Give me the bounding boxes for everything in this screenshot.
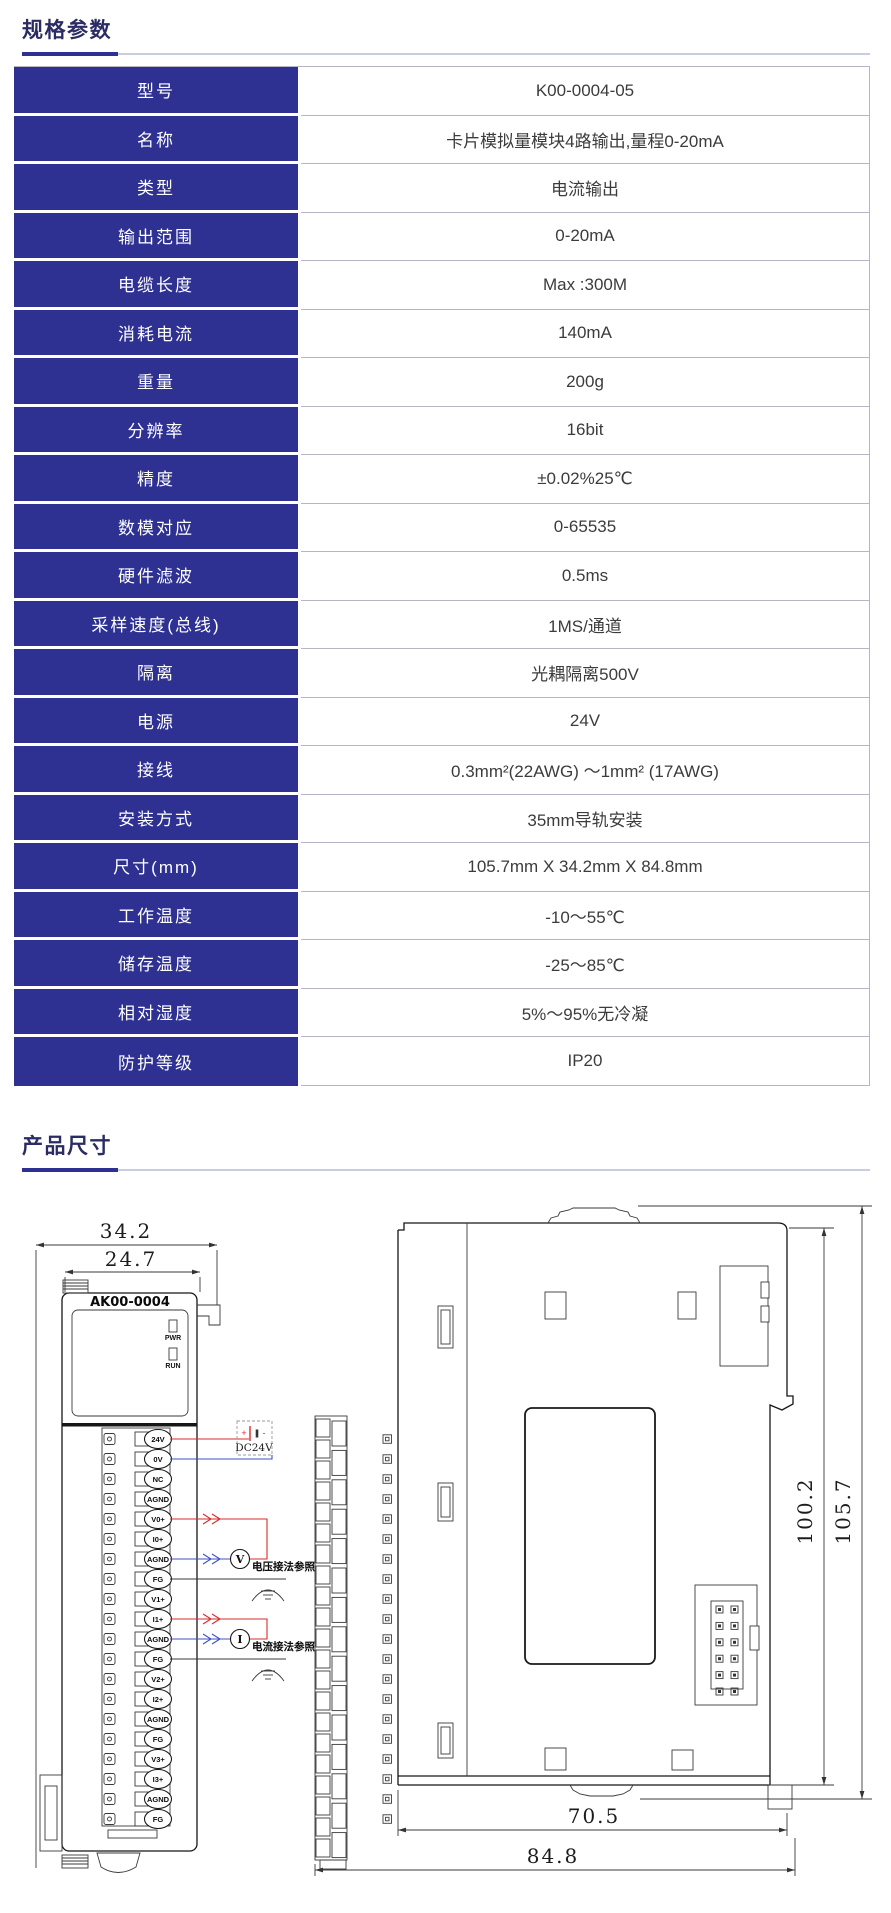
screw-icon bbox=[104, 1773, 115, 1784]
screw-icon bbox=[104, 1553, 115, 1564]
terminal-label: I2+ bbox=[153, 1694, 164, 1703]
screw-icon bbox=[104, 1753, 115, 1764]
spec-value: -25～85℃ bbox=[301, 940, 870, 989]
side-view-drawing: 100.2 105.7 70.5 84.8 bbox=[315, 1206, 872, 1876]
pwr-led-label: PWR bbox=[165, 1335, 181, 1342]
table-row: 消耗电流140mA bbox=[14, 310, 870, 359]
underline-light-bar bbox=[118, 1169, 870, 1171]
table-row: 重量200g bbox=[14, 358, 870, 407]
spec-value: 200g bbox=[301, 358, 870, 407]
table-row: 数模对应0-65535 bbox=[14, 504, 870, 553]
front-view-drawing: 34.2 24.7 AK00-0004 PWR RUN 24V0VNCAGNDV… bbox=[36, 1219, 315, 1873]
svg-text:I: I bbox=[237, 1633, 242, 1646]
voltage-note: 电压接法参照 bbox=[252, 1560, 315, 1573]
pin-icon bbox=[383, 1594, 392, 1603]
terminal-list: 24V0VNCAGNDV0+I0+AGNDFGV1+I1+AGNDFGV2+I2… bbox=[104, 1429, 172, 1828]
run-led-icon bbox=[169, 1348, 177, 1360]
spec-label: 精度 bbox=[14, 455, 301, 504]
table-row: 采样速度(总线)1MS/通道 bbox=[14, 601, 870, 650]
pin-icon bbox=[383, 1494, 392, 1503]
spec-value: 0.5ms bbox=[301, 552, 870, 601]
side-height-outer-dim: 105.7 bbox=[831, 1477, 855, 1544]
spec-label: 数模对应 bbox=[14, 504, 301, 553]
screw-icon bbox=[104, 1613, 115, 1624]
table-row: 名称卡片模拟量模块4路输出,量程0-20mA bbox=[14, 116, 870, 165]
screw-icon bbox=[104, 1693, 115, 1704]
pin-icon bbox=[383, 1654, 392, 1663]
din-clip-top bbox=[548, 1208, 640, 1223]
screw-icon bbox=[104, 1573, 115, 1584]
pin-icon bbox=[383, 1634, 392, 1643]
connector-pins bbox=[716, 1606, 738, 1695]
table-row: 防护等级IP20 bbox=[14, 1037, 870, 1086]
terminal-label: I0+ bbox=[153, 1534, 164, 1543]
terminal-label: FG bbox=[153, 1574, 164, 1583]
pwr-led-icon bbox=[169, 1320, 177, 1332]
terminal-label: V3+ bbox=[151, 1754, 165, 1763]
case-hole bbox=[672, 1750, 693, 1770]
pin-icon bbox=[383, 1814, 392, 1823]
screw-icon bbox=[104, 1633, 115, 1644]
spec-label: 采样速度(总线) bbox=[14, 601, 301, 650]
dc24v-label: DC24V bbox=[235, 1442, 273, 1454]
screw-icon bbox=[104, 1433, 115, 1444]
terminal-label: FG bbox=[153, 1734, 164, 1743]
screw-icon bbox=[104, 1653, 115, 1664]
spec-label: 隔离 bbox=[14, 649, 301, 698]
pin-icon bbox=[383, 1574, 392, 1583]
terminal-label: AGND bbox=[147, 1634, 170, 1643]
terminal-label: AGND bbox=[147, 1794, 170, 1803]
wiring-diagram: + - DC24V V 电压接法参照 I 电流接法参照 bbox=[170, 1421, 315, 1681]
terminal-label: V2+ bbox=[151, 1674, 165, 1683]
pin-icon bbox=[383, 1694, 392, 1703]
vent-slot bbox=[438, 1723, 453, 1758]
table-row: 硬件滤波0.5ms bbox=[14, 552, 870, 601]
underline-accent-bar bbox=[22, 1168, 118, 1172]
pin-icon bbox=[383, 1474, 392, 1483]
spec-value: 140mA bbox=[301, 310, 870, 359]
spec-value: 0-65535 bbox=[301, 504, 870, 553]
table-row: 安装方式35mm导轨安装 bbox=[14, 795, 870, 844]
screw-icon bbox=[104, 1713, 115, 1724]
side-outline bbox=[398, 1223, 793, 1785]
screw-icon bbox=[104, 1473, 115, 1484]
battery-plus: + bbox=[241, 1428, 246, 1438]
spec-table: 型号K00-0004-05名称卡片模拟量模块4路输出,量程0-20mA类型电流输… bbox=[14, 66, 870, 1086]
spec-label: 分辨率 bbox=[14, 407, 301, 456]
screw-icon bbox=[104, 1513, 115, 1524]
vent-slot bbox=[438, 1306, 453, 1348]
case-hole bbox=[545, 1292, 566, 1319]
pin-icon bbox=[383, 1614, 392, 1623]
pin-row bbox=[383, 1434, 392, 1823]
spec-label: 电缆长度 bbox=[14, 261, 301, 310]
spec-value: IP20 bbox=[301, 1037, 870, 1086]
spec-value: 16bit bbox=[301, 407, 870, 456]
terminal-label: FG bbox=[153, 1654, 164, 1663]
underline-light-bar bbox=[118, 53, 870, 55]
pin-icon bbox=[383, 1454, 392, 1463]
specs-title-underline bbox=[22, 52, 870, 56]
spec-value: K00-0004-05 bbox=[301, 67, 870, 116]
spec-label: 硬件滤波 bbox=[14, 552, 301, 601]
screw-icon bbox=[104, 1793, 115, 1804]
dimensions-section-title: 产品尺寸 bbox=[0, 1130, 891, 1160]
screw-icon bbox=[104, 1453, 115, 1464]
module-front-outline bbox=[62, 1293, 197, 1851]
spec-value: 105.7mm X 34.2mm X 84.8mm bbox=[301, 843, 870, 892]
terminal-label: 0V bbox=[153, 1454, 162, 1463]
dimensions-title-underline bbox=[22, 1168, 870, 1172]
spec-value: 电流输出 bbox=[301, 164, 870, 213]
spec-value: 24V bbox=[301, 698, 870, 747]
pin-icon bbox=[383, 1434, 392, 1443]
spec-label: 安装方式 bbox=[14, 795, 301, 844]
terminal-label: AGND bbox=[147, 1554, 170, 1563]
table-row: 电缆长度Max :300M bbox=[14, 261, 870, 310]
screw-icon bbox=[104, 1733, 115, 1744]
battery-minus: - bbox=[263, 1428, 266, 1438]
pin-icon bbox=[383, 1754, 392, 1763]
spec-value: 0-20mA bbox=[301, 213, 870, 262]
front-width-inner-dim: 24.7 bbox=[105, 1247, 158, 1271]
front-width-outer-dim: 34.2 bbox=[100, 1219, 153, 1243]
table-row: 相对湿度5%～95%无冷凝 bbox=[14, 989, 870, 1038]
wire-v0 bbox=[170, 1519, 267, 1559]
spec-value: 卡片模拟量模块4路输出,量程0-20mA bbox=[301, 116, 870, 165]
spec-label: 工作温度 bbox=[14, 892, 301, 941]
pin-icon bbox=[383, 1734, 392, 1743]
side-height-inner-dim: 100.2 bbox=[793, 1477, 817, 1544]
model-label: AK00-0004 bbox=[90, 1295, 170, 1310]
spec-label: 电源 bbox=[14, 698, 301, 747]
spec-label: 接线 bbox=[14, 746, 301, 795]
spec-label: 型号 bbox=[14, 67, 301, 116]
pin-icon bbox=[383, 1554, 392, 1563]
spec-value: 0.3mm²(22AWG) ～1mm² (17AWG) bbox=[301, 746, 870, 795]
specs-section-title: 规格参数 bbox=[0, 0, 891, 44]
spec-label: 相对湿度 bbox=[14, 989, 301, 1038]
spec-label: 消耗电流 bbox=[14, 310, 301, 359]
pin-icon bbox=[383, 1514, 392, 1523]
pin-icon bbox=[383, 1714, 392, 1723]
spec-value: 35mm导轨安装 bbox=[301, 795, 870, 844]
case-hole bbox=[545, 1748, 566, 1770]
spec-label: 重量 bbox=[14, 358, 301, 407]
top-clip bbox=[63, 1280, 88, 1293]
terminal-label: AGND bbox=[147, 1714, 170, 1723]
wire-i1 bbox=[170, 1619, 267, 1639]
side-depth-outer-dim: 84.8 bbox=[527, 1844, 580, 1868]
terminal-label: I3+ bbox=[153, 1774, 164, 1783]
table-row: 接线0.3mm²(22AWG) ～1mm² (17AWG) bbox=[14, 746, 870, 795]
terminal-label: I1+ bbox=[153, 1614, 164, 1623]
table-row: 尺寸(mm)105.7mm X 34.2mm X 84.8mm bbox=[14, 843, 870, 892]
side-depth-inner-dim: 70.5 bbox=[568, 1804, 621, 1828]
table-row: 电源24V bbox=[14, 698, 870, 747]
table-row: 隔离光耦隔离500V bbox=[14, 649, 870, 698]
spec-label: 输出范围 bbox=[14, 213, 301, 262]
table-row: 输出范围0-20mA bbox=[14, 213, 870, 262]
pin-icon bbox=[383, 1674, 392, 1683]
vent-slot bbox=[438, 1483, 453, 1521]
spec-value: -10～55℃ bbox=[301, 892, 870, 941]
terminal-label: V1+ bbox=[151, 1594, 165, 1603]
screw-icon bbox=[104, 1673, 115, 1684]
din-foot bbox=[768, 1785, 792, 1809]
screw-icon bbox=[104, 1493, 115, 1504]
spec-label: 类型 bbox=[14, 164, 301, 213]
screw-icon bbox=[104, 1813, 115, 1824]
pin-icon bbox=[383, 1774, 392, 1783]
nameplate-area bbox=[525, 1408, 655, 1664]
din-hook bbox=[197, 1305, 220, 1325]
pin-icon bbox=[383, 1534, 392, 1543]
table-row: 工作温度-10～55℃ bbox=[14, 892, 870, 941]
spec-label: 名称 bbox=[14, 116, 301, 165]
table-row: 精度±0.02%25℃ bbox=[14, 455, 870, 504]
bus-connector bbox=[695, 1585, 757, 1705]
svg-text:V: V bbox=[235, 1553, 245, 1566]
spec-value: 光耦隔离500V bbox=[301, 649, 870, 698]
terminal-label: V0+ bbox=[151, 1514, 165, 1523]
underline-accent-bar bbox=[22, 52, 118, 56]
din-clip-bottom bbox=[570, 1785, 633, 1796]
terminal-label: FG bbox=[153, 1814, 164, 1823]
run-led-label: RUN bbox=[165, 1363, 180, 1370]
spec-value: Max :300M bbox=[301, 261, 870, 310]
terminal-label: 24V bbox=[151, 1434, 164, 1443]
table-row: 分辨率16bit bbox=[14, 407, 870, 456]
panel-divider bbox=[62, 1423, 197, 1427]
spec-label: 防护等级 bbox=[14, 1037, 301, 1086]
screw-icon bbox=[104, 1593, 115, 1604]
spec-value: ±0.02%25℃ bbox=[301, 455, 870, 504]
terminal-label: AGND bbox=[147, 1494, 170, 1503]
terminal-strip-side bbox=[315, 1416, 347, 1869]
spec-label: 储存温度 bbox=[14, 940, 301, 989]
current-note: 电流接法参照 bbox=[252, 1640, 315, 1653]
wire-0v bbox=[170, 1455, 272, 1459]
spec-label: 尺寸(mm) bbox=[14, 843, 301, 892]
spec-value: 5%～95%无冷凝 bbox=[301, 989, 870, 1038]
terminal-label: NC bbox=[153, 1474, 164, 1483]
bottom-clip bbox=[97, 1853, 140, 1873]
table-row: 储存温度-25～85℃ bbox=[14, 940, 870, 989]
table-row: 型号K00-0004-05 bbox=[14, 67, 870, 116]
screw-icon bbox=[104, 1533, 115, 1544]
product-dimension-drawings: 34.2 24.7 AK00-0004 PWR RUN 24V0VNCAGNDV… bbox=[0, 1178, 891, 1913]
bottom-foot bbox=[62, 1855, 88, 1868]
table-row: 类型电流输出 bbox=[14, 164, 870, 213]
pin-icon bbox=[383, 1794, 392, 1803]
case-hole bbox=[678, 1292, 696, 1319]
spec-value: 1MS/通道 bbox=[301, 601, 870, 650]
